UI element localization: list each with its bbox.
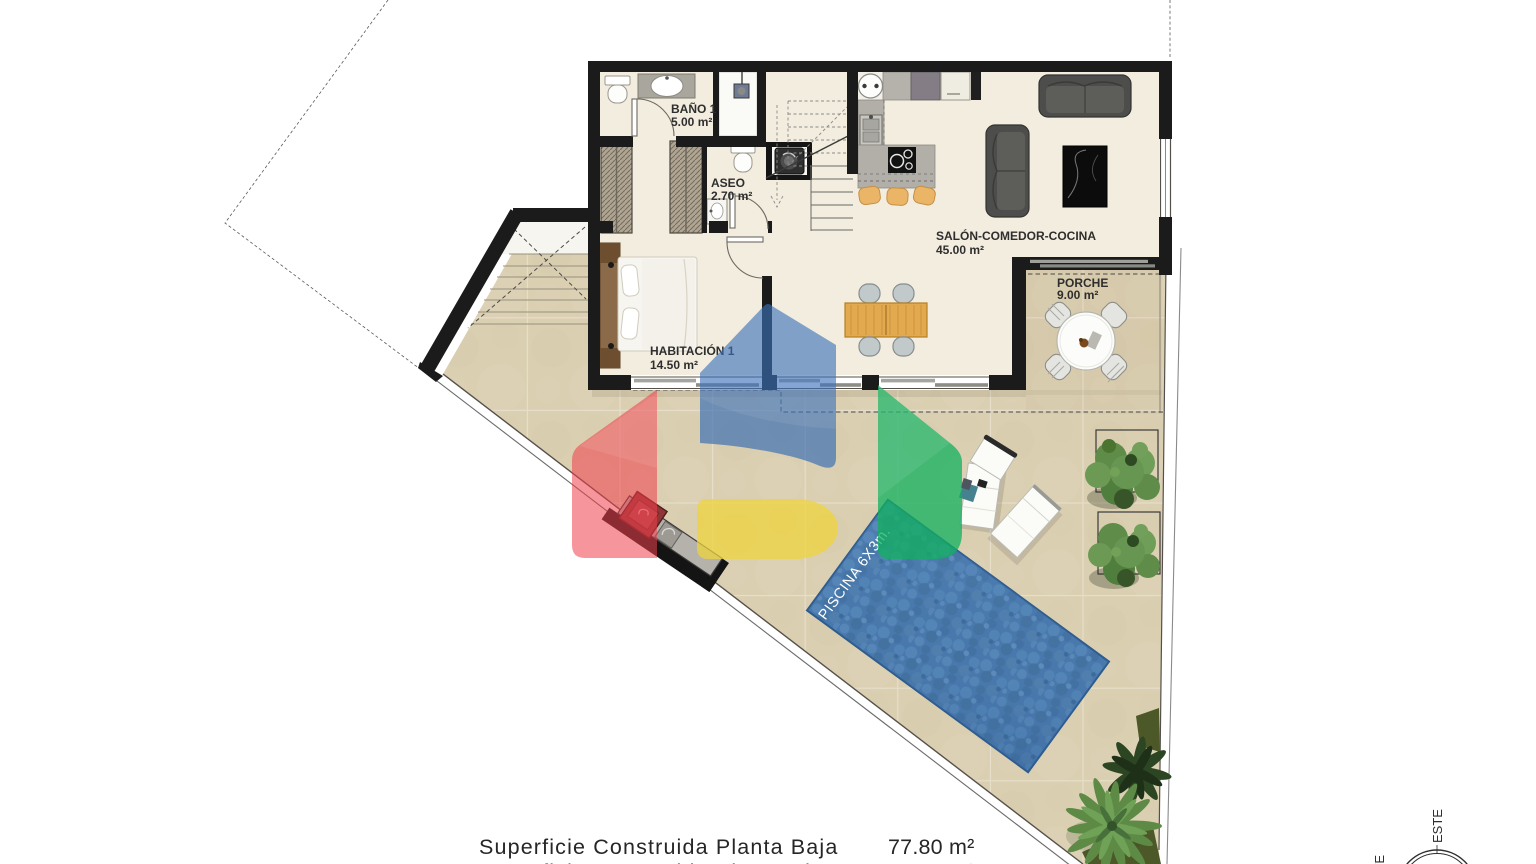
svg-text:Superficie Construida Planta A: Superficie Construida Planta Alta [479, 860, 831, 864]
svg-text:2.70 m²: 2.70 m² [711, 189, 752, 203]
svg-text:5.00 m²: 5.00 m² [671, 115, 712, 129]
svg-text:Superficie Construida Planta B: Superficie Construida Planta Baja [479, 835, 838, 859]
svg-text:14.50 m²: 14.50 m² [650, 358, 698, 372]
svg-text:70.00 m²: 70.00 m² [888, 860, 974, 864]
svg-text:BAÑO 1: BAÑO 1 [671, 101, 717, 116]
svg-text:ASEO: ASEO [711, 176, 745, 190]
svg-text:77.80 m²: 77.80 m² [888, 835, 974, 859]
svg-text:ESTE: ESTE [1430, 809, 1445, 843]
svg-text:9.00 m²: 9.00 m² [1057, 288, 1098, 302]
svg-text:45.00 m²: 45.00 m² [936, 243, 984, 257]
svg-text:OESTE: OESTE [1372, 855, 1387, 864]
svg-text:SALÓN-COMEDOR-COCINA: SALÓN-COMEDOR-COCINA [936, 228, 1096, 243]
